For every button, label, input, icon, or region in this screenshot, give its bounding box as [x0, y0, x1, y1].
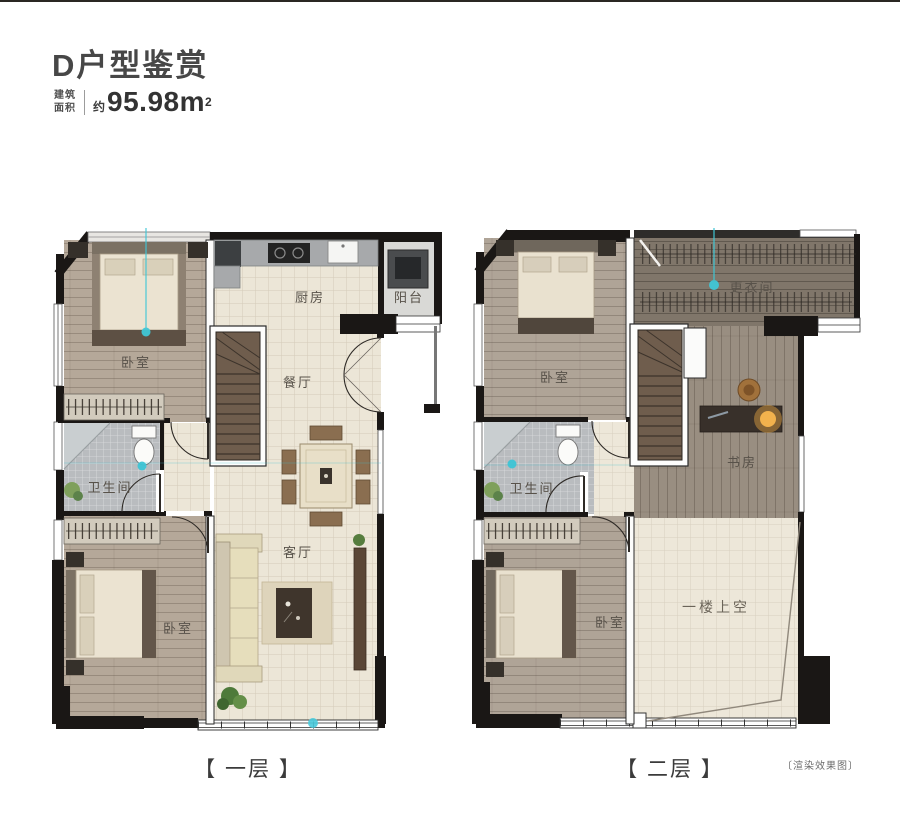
- floor2-plan: 卧室 更衣间 书房 卫生间 卧室 一楼上空: [470, 226, 870, 750]
- area-unit-sup: 2: [205, 95, 212, 109]
- room-label-kitchen: 厨房: [295, 290, 325, 305]
- render-note: 〔渲染效果图〕: [782, 757, 859, 772]
- floor1-caption: 【 一层 】: [48, 753, 448, 783]
- area-value: 95.98m: [107, 86, 205, 118]
- fridge: [215, 241, 241, 267]
- room-label-balcony: 阳台: [394, 290, 424, 305]
- area-approx: 约: [93, 98, 105, 115]
- staircase: [210, 326, 266, 466]
- room-label-void: 一楼上空: [682, 599, 750, 615]
- stove: [268, 243, 310, 263]
- room-label-bathroom: 卫生间: [509, 481, 554, 496]
- marker-dot: [142, 328, 151, 337]
- wardrobe-bottom: [64, 518, 160, 544]
- sink: [328, 241, 358, 263]
- rug-coffee-table: [262, 582, 332, 644]
- floor1-plan: 卧室 厨房 阳台 餐厅 卫生间 客厅 卧室: [48, 226, 448, 750]
- area-divider: [84, 90, 85, 115]
- room-label-dining: 餐厅: [283, 375, 313, 390]
- room-label-study: 书房: [727, 455, 757, 470]
- toilet: [132, 426, 156, 438]
- room-label-bathroom: 卫生间: [87, 480, 132, 495]
- sofa: [216, 534, 262, 682]
- marker-drop-bottom: [308, 718, 318, 728]
- room-label-living: 客厅: [283, 545, 313, 560]
- washing-machine: [388, 250, 428, 288]
- exterior-pillar: [798, 656, 830, 724]
- bed-bottom: [66, 552, 156, 675]
- room-label-bedroom-bottom: 卧室: [163, 621, 193, 636]
- marker-dot-bathroom: [508, 460, 517, 469]
- wardrobe-bottom: [484, 518, 580, 544]
- void-floor: [634, 518, 802, 720]
- area-label: 建筑 面积: [54, 89, 76, 115]
- toilet: [556, 425, 580, 437]
- top-border-line: [0, 0, 900, 2]
- area-label-line2: 面积: [54, 102, 76, 115]
- area-label-line1: 建筑: [54, 89, 76, 102]
- room-label-bedroom-top: 卧室: [121, 355, 151, 370]
- desk-lamp: [760, 411, 776, 427]
- room-label-cloakroom: 更衣间: [729, 280, 774, 295]
- room-label-bedroom-top: 卧室: [540, 370, 570, 385]
- page-title: D户型鉴赏: [52, 40, 208, 85]
- hallway-floor: [164, 423, 210, 511]
- area-info: 建筑 面积 约 95.98m 2: [54, 86, 212, 118]
- bed-bottom: [486, 552, 576, 677]
- marker-dot-bathroom: [138, 462, 147, 471]
- marker-drop: [709, 280, 719, 290]
- tv-cabinet: [353, 534, 366, 670]
- room-label-bedroom-bottom: 卧室: [595, 615, 625, 630]
- floorplan-image: D户型鉴赏 建筑 面积 约 95.98m 2: [0, 0, 900, 824]
- wardrobe-top: [64, 394, 164, 420]
